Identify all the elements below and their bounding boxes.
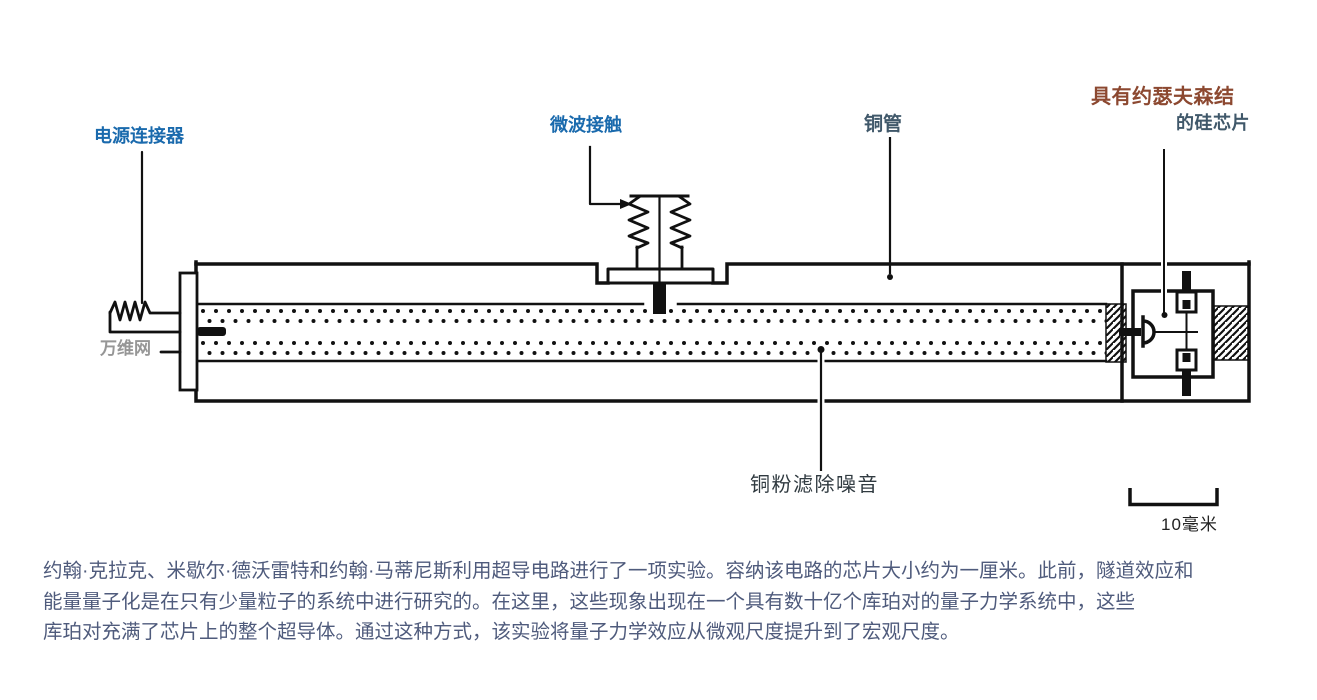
caption-line-2: 能量量子化是在只有少量粒子的系统中进行研究的。在这里，这些现象出现在一个具有数十… — [43, 587, 1293, 618]
apparatus-line-art — [0, 0, 1317, 555]
label-josephson-junction: 具有约瑟夫森结 — [1091, 86, 1235, 108]
junction-pin-bottom — [1182, 369, 1191, 396]
scale-bar — [1130, 488, 1217, 505]
label-scale-10mm: 10毫米 — [1161, 516, 1218, 535]
microwave-leader-line — [590, 147, 621, 204]
caption-line-1: 约翰·克拉克、米歇尔·德沃雷特和约翰·马蒂尼斯利用超导电路进行了一项实验。容纳该… — [43, 556, 1293, 587]
label-copper-tube: 铜管 — [864, 115, 902, 136]
microwave-connector — [590, 147, 713, 314]
label-power-connector: 电源连接器 — [94, 127, 184, 147]
copper-tube-leader — [887, 137, 893, 280]
center-conductor-stub — [197, 327, 226, 336]
copper-powder-fill — [200, 306, 1106, 360]
watermark-text: 万维网 — [100, 340, 151, 359]
copper-powder-leader — [818, 346, 825, 471]
hatch-block-right — [1214, 306, 1249, 360]
chip-feed-bar — [1119, 328, 1141, 336]
caption: 约翰·克拉克、米歇尔·德沃雷特和约翰·马蒂尼斯利用超导电路进行了一项实验。容纳该… — [43, 556, 1293, 648]
power-connector-coil — [110, 152, 180, 352]
copper-tube-outline — [196, 262, 1249, 401]
silicon-chip-assembly — [1106, 150, 1249, 396]
diagram-page: 电源连接器 微波接触 铜管 具有约瑟夫森结 的硅芯片 铜粉滤除噪音 10毫米 万… — [0, 0, 1317, 700]
left-flange — [180, 273, 197, 390]
microwave-center-pin — [653, 283, 666, 314]
label-copper-powder: 铜粉滤除噪音 — [750, 474, 879, 496]
label-microwave-contact: 微波接触 — [550, 116, 622, 136]
silicon-chip — [1133, 291, 1213, 377]
caption-line-3: 库珀对充满了芯片上的整个超导体。通过这种方式，该实验将量子力学效应从微观尺度提升… — [43, 617, 1293, 648]
label-silicon-chip: 的硅芯片 — [1176, 114, 1250, 134]
